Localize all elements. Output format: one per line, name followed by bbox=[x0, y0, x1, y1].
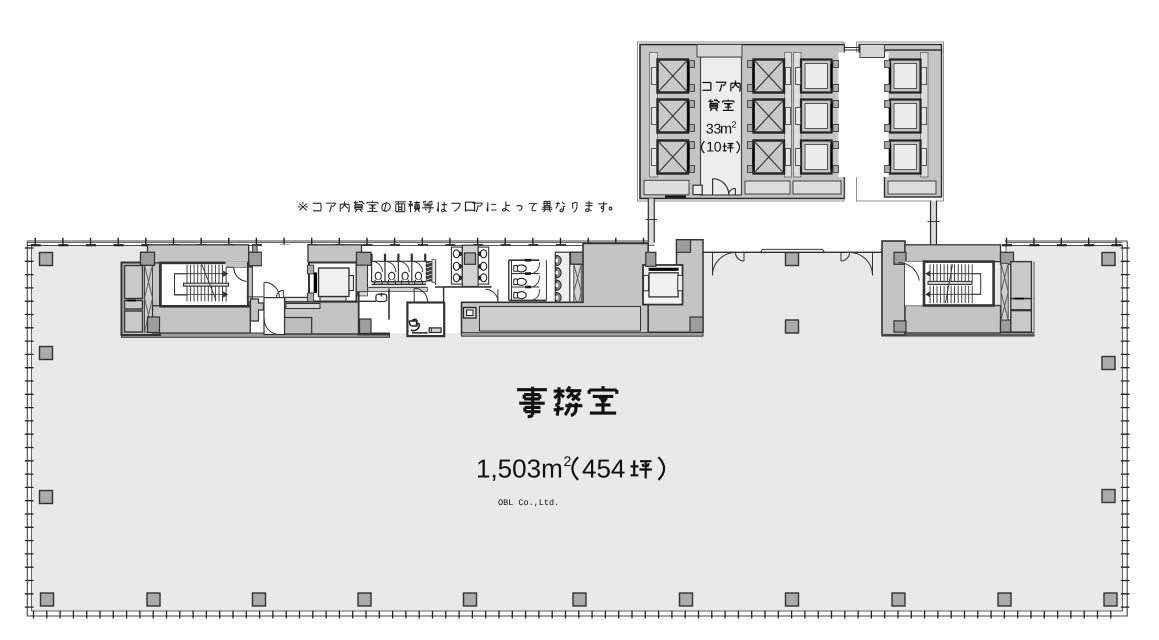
svg-text:0: 0 bbox=[714, 139, 722, 155]
svg-text:m: m bbox=[720, 122, 732, 138]
svg-text:ロ: ロ bbox=[463, 199, 478, 215]
svg-text:1,503m: 1,503m bbox=[476, 454, 563, 484]
svg-text:2: 2 bbox=[732, 120, 737, 130]
svg-text:2: 2 bbox=[564, 453, 572, 469]
svg-text:454: 454 bbox=[582, 454, 625, 484]
svg-text:OBL Co.,Ltd.: OBL Co.,Ltd. bbox=[498, 498, 559, 508]
